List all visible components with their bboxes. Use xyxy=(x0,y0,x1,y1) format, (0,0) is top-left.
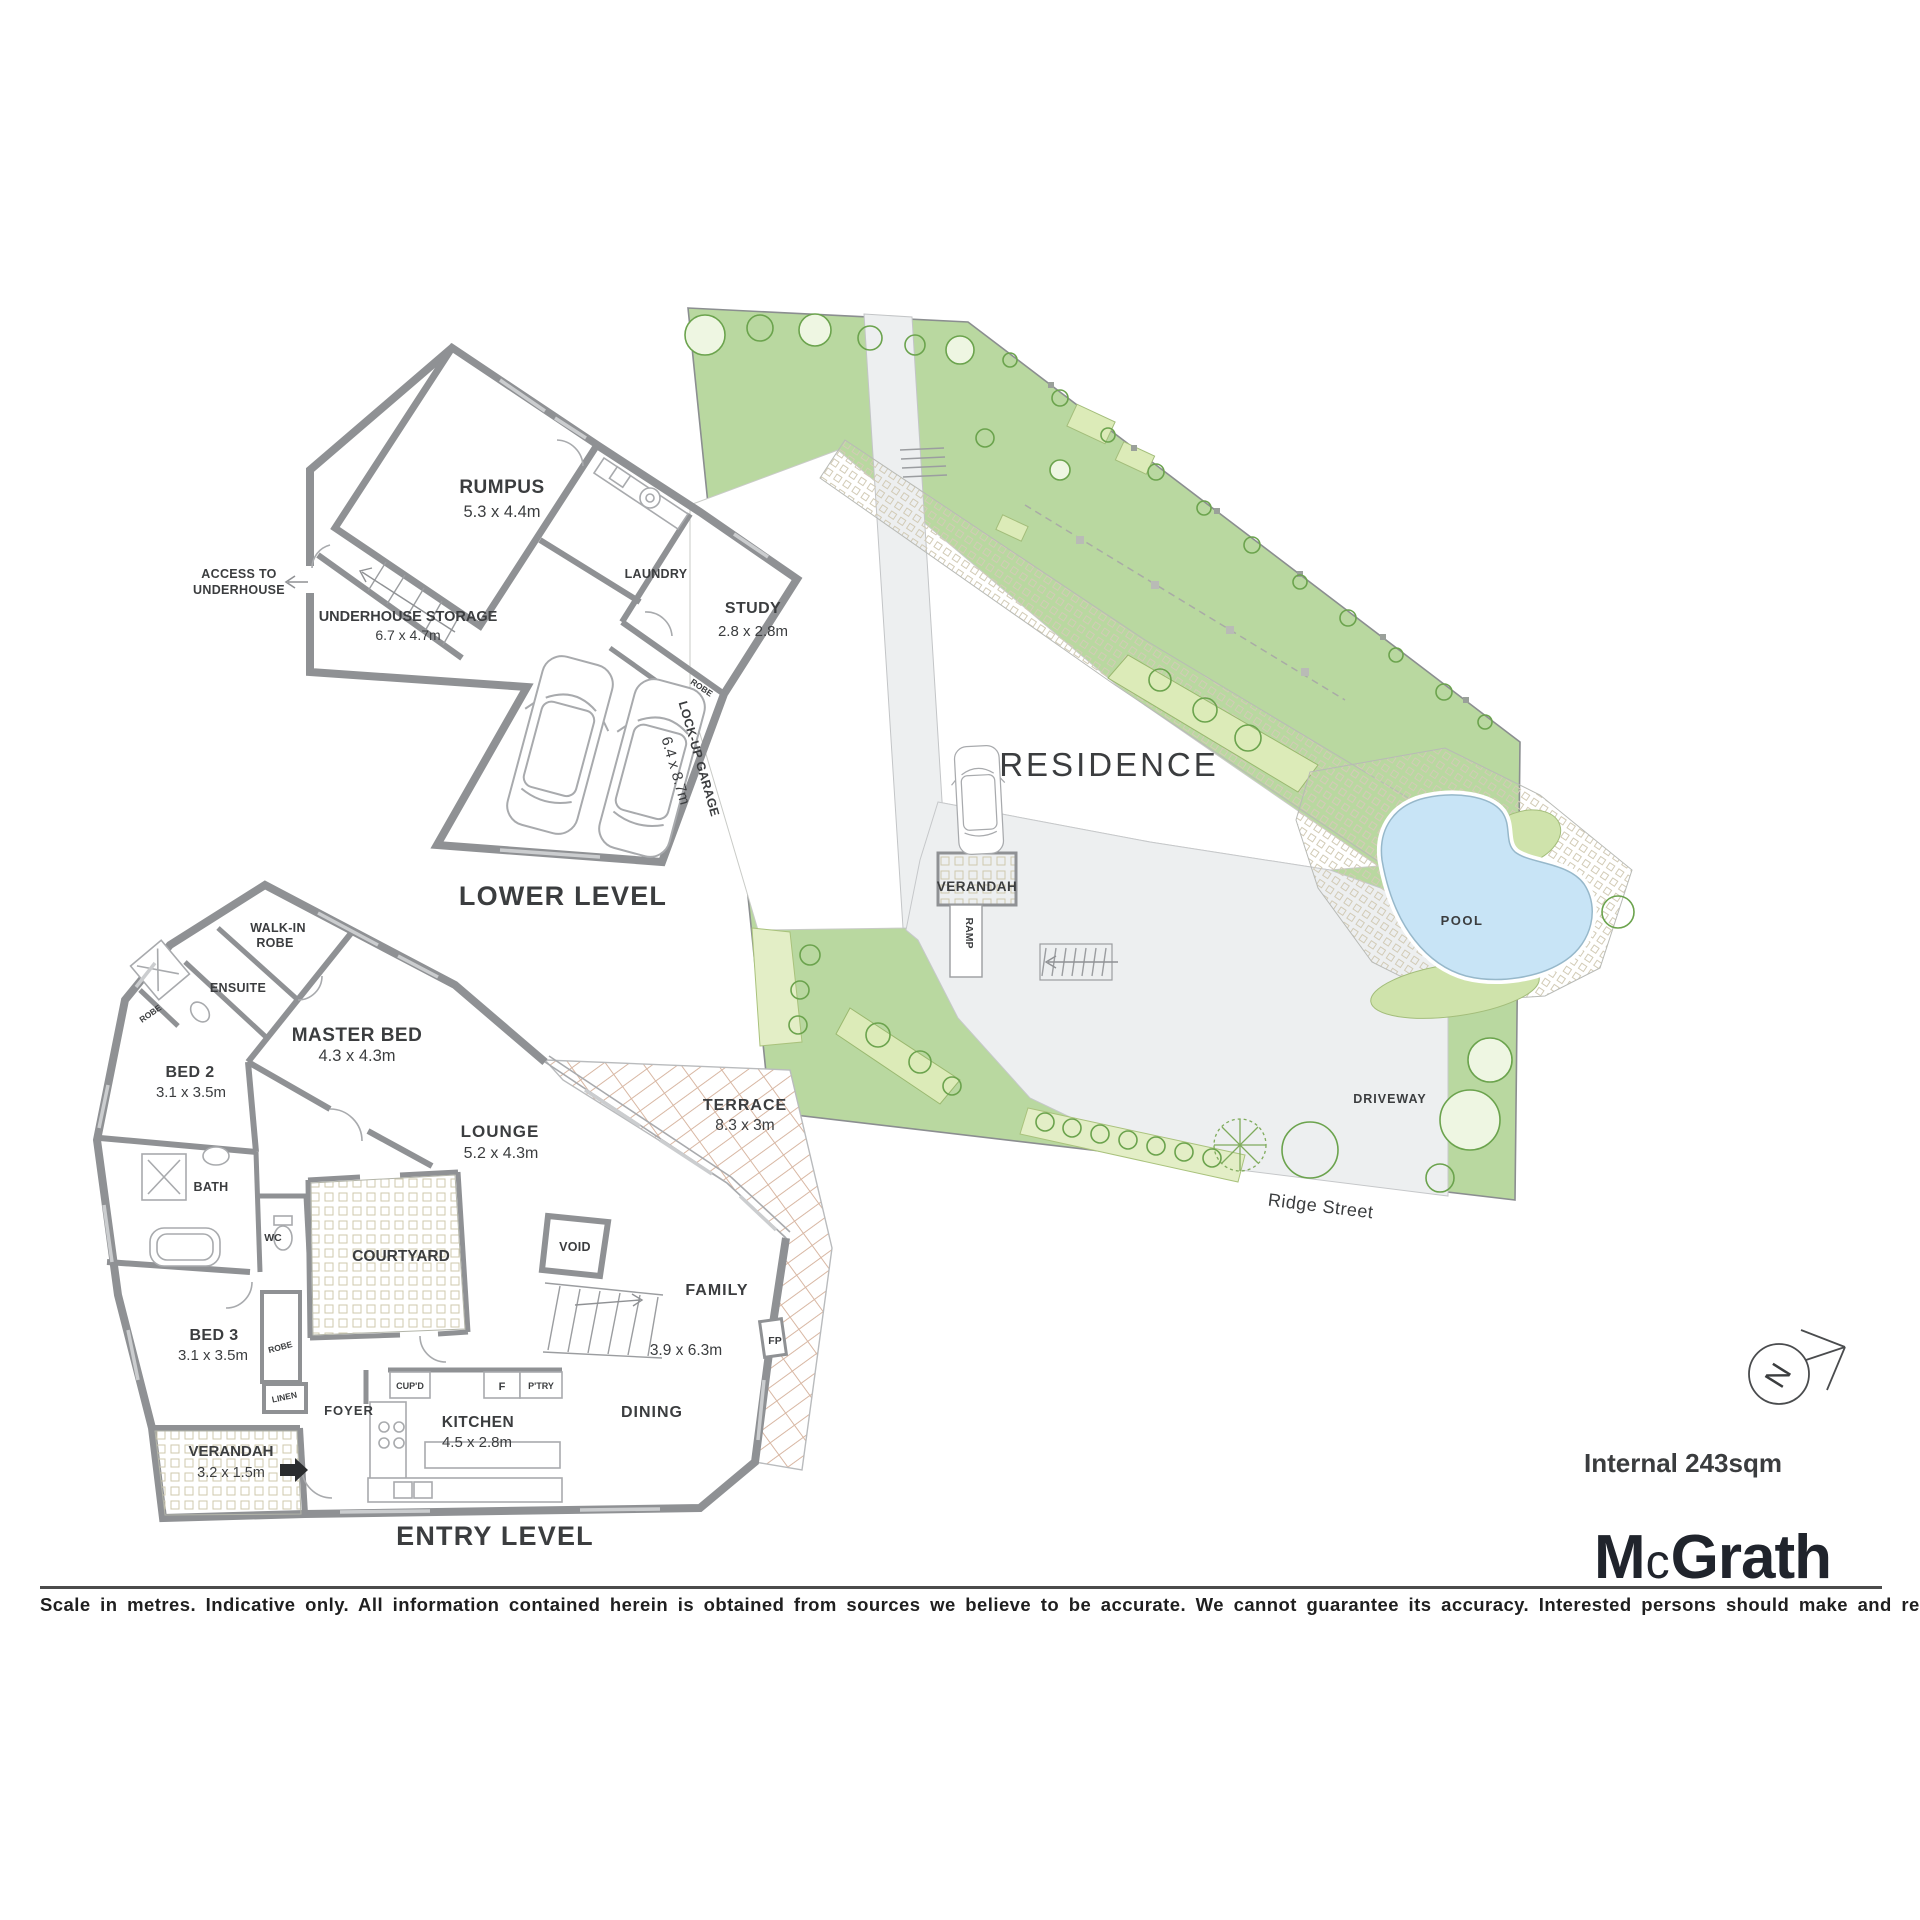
site-ramp-label: RAMP xyxy=(963,918,975,949)
footer-divider xyxy=(40,1586,1882,1589)
cupd-label: CUP'D xyxy=(396,1381,424,1391)
master-label: MASTER BED xyxy=(292,1025,423,1046)
entry-verandah-label: VERANDAH xyxy=(188,1443,273,1460)
wir-label-1: WALK-IN xyxy=(250,921,306,935)
courtyard-label: COURTYARD xyxy=(352,1248,450,1265)
bed2-label: BED 2 xyxy=(165,1064,214,1081)
ensuite-label: ENSUITE xyxy=(210,981,266,995)
access-arrow-icon xyxy=(286,576,308,588)
floorplan-page: RESIDENCE VERANDAH RAMP POOL DRIVEWAY Ri… xyxy=(0,0,1920,1920)
laundry-label: LAUNDRY xyxy=(625,567,688,581)
logo-grath: Grath xyxy=(1671,1522,1831,1593)
entry-level-caption: ENTRY LEVEL xyxy=(396,1521,594,1551)
lower-level-caption: LOWER LEVEL xyxy=(459,881,667,911)
compass-icon xyxy=(1749,1330,1845,1404)
residence-label: RESIDENCE xyxy=(999,746,1219,783)
access-label-1: ACCESS TO xyxy=(201,567,276,581)
entry-verandah-dims: 3.2 x 1.5m xyxy=(197,1465,265,1481)
rumpus-dims: 5.3 x 4.4m xyxy=(463,503,540,521)
rumpus-label: RUMPUS xyxy=(459,477,544,498)
terrace-label: TERRACE xyxy=(703,1097,787,1114)
kitchen-label: KITCHEN xyxy=(442,1414,514,1431)
site-verandah-label: VERANDAH xyxy=(937,879,1018,894)
logo-c: c xyxy=(1646,1535,1670,1590)
wc-label: WC xyxy=(264,1232,282,1244)
storage-label: UNDERHOUSE STORAGE xyxy=(319,609,498,625)
access-label-2: UNDERHOUSE xyxy=(193,583,285,597)
wir-label-2: ROBE xyxy=(256,936,293,950)
lounge-label: LOUNGE xyxy=(461,1122,540,1141)
street-label: Ridge Street xyxy=(1267,1190,1375,1223)
internal-area-label: Internal 243sqm xyxy=(1584,1448,1782,1478)
terrace-dims: 8.3 x 3m xyxy=(715,1117,774,1134)
mcgrath-logo: McGrath xyxy=(1594,1522,1831,1593)
lounge-dims: 5.2 x 4.3m xyxy=(464,1145,539,1162)
site-plan: RESIDENCE VERANDAH RAMP POOL DRIVEWAY Ri… xyxy=(685,308,1634,1222)
master-dims: 4.3 x 4.3m xyxy=(318,1047,395,1065)
family-dims: 3.9 x 6.3m xyxy=(650,1342,722,1359)
logo-m: M xyxy=(1594,1522,1645,1593)
storage-dims: 6.7 x 4.7m xyxy=(375,627,440,643)
footer-disclaimer: Scale in metres. Indicative only. All in… xyxy=(40,1594,1900,1616)
family-label: FAMILY xyxy=(685,1282,748,1299)
fridge-label: F xyxy=(499,1381,506,1393)
study-dims: 2.8 x 2.8m xyxy=(718,623,788,640)
compass-north-label: N xyxy=(1759,1358,1798,1394)
bed2-dims: 3.1 x 3.5m xyxy=(156,1084,226,1101)
void-label: VOID xyxy=(559,1240,591,1254)
dining-label: DINING xyxy=(621,1404,683,1421)
bed3-label: BED 3 xyxy=(189,1327,238,1344)
bed3-dims: 3.1 x 3.5m xyxy=(178,1347,248,1364)
bath-label: BATH xyxy=(194,1180,229,1194)
driveway-label: DRIVEWAY xyxy=(1353,1092,1427,1106)
kitchen-dims: 4.5 x 2.8m xyxy=(442,1434,512,1451)
entry-level-plan: WALK-IN ROBE ENSUITE ROBE BED 2 3.1 x 3.… xyxy=(97,885,832,1551)
foyer-label: FOYER xyxy=(324,1403,374,1418)
pool-label: POOL xyxy=(1441,913,1484,928)
study-label: STUDY xyxy=(725,600,781,617)
fp-label: FP xyxy=(768,1335,781,1347)
floorplan-canvas: RESIDENCE VERANDAH RAMP POOL DRIVEWAY Ri… xyxy=(0,0,1920,1920)
pantry-label: P'TRY xyxy=(528,1381,554,1391)
